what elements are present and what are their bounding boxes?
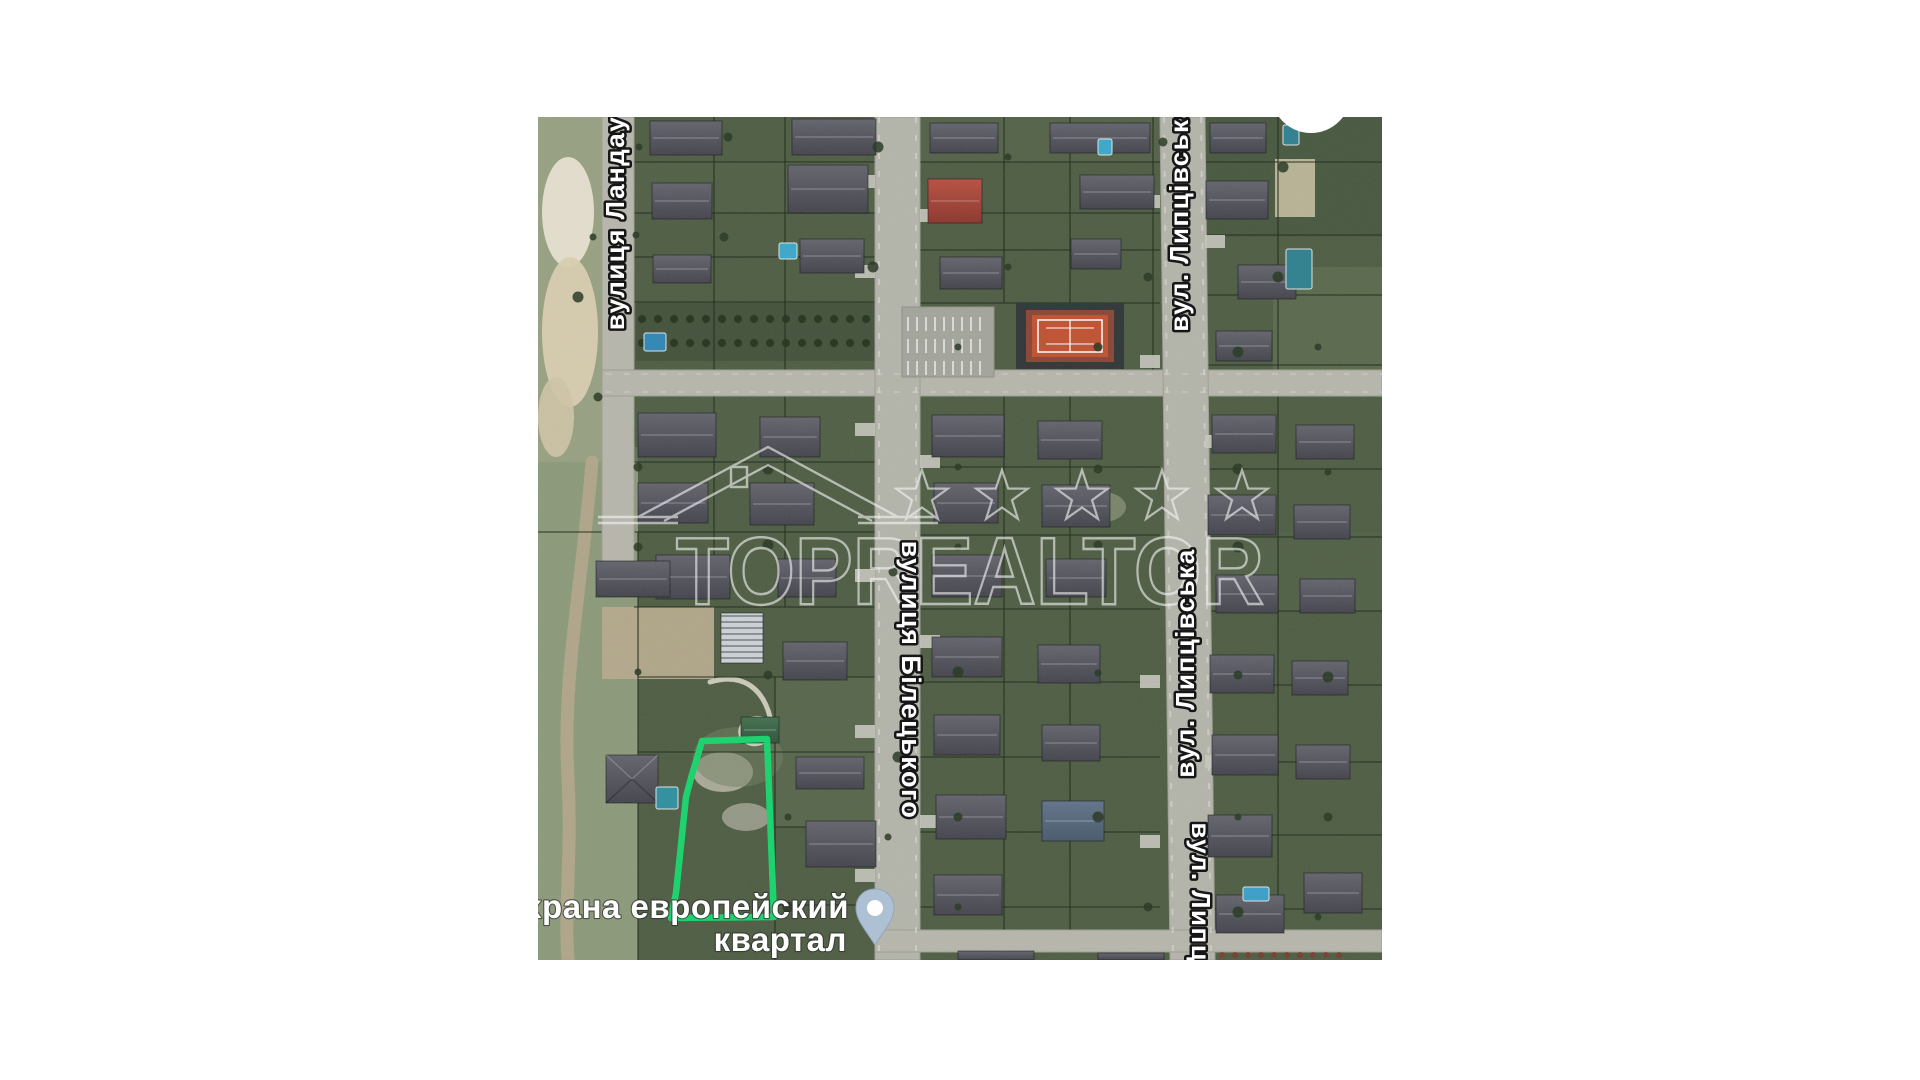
page-background: TOPREALTOR вулиця Ландау вул. Липцівська… [0,0,1920,1080]
street-label-biletskoho: вулиця Білецького [896,541,926,820]
place-label-line2: квартал [714,921,847,958]
street-label-lyptsivska-bottom: вул. Липцівська [1186,822,1216,960]
place-label-line1: Охрана европейский [538,888,849,925]
street-label-lyptsivska-top: вул. Липцівська [1164,117,1194,332]
satellite-map-image: TOPREALTOR вулиця Ландау вул. Липцівська… [538,117,1382,960]
street-label-landau: вулиця Ландау [600,117,630,330]
street-label-lyptsivska-mid: вул. Липцівська [1170,548,1200,777]
